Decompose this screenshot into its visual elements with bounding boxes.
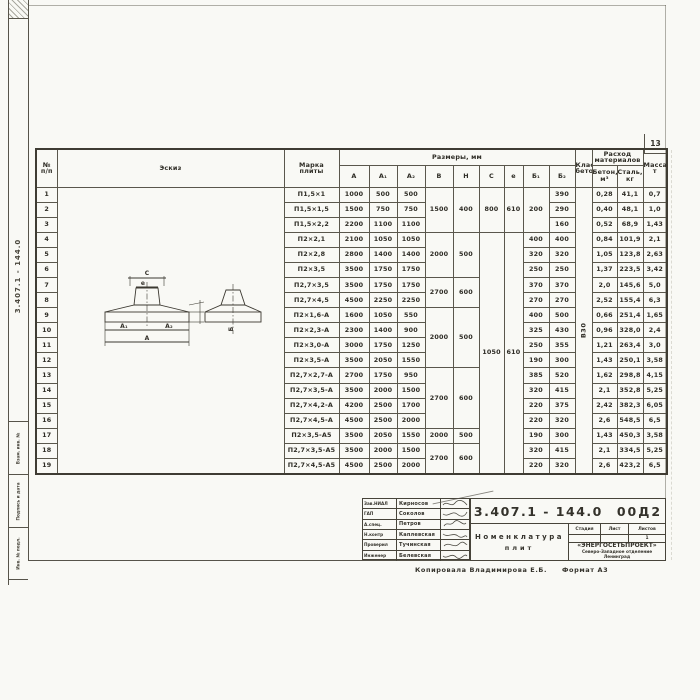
cell-b2: 320 <box>549 459 575 474</box>
cell-stal: 155,4 <box>617 293 643 308</box>
cell-marka: П2,7×3,5 <box>284 277 339 292</box>
cell-marka: П2×3,5-А <box>284 353 339 368</box>
cell-b2: 430 <box>549 323 575 338</box>
cell-num: 5 <box>36 247 57 262</box>
cell-a: 2200 <box>339 217 369 232</box>
cell-b1: 320 <box>523 247 549 262</box>
cell-b1: 400 <box>523 232 549 247</box>
cell-stal: 423,2 <box>617 459 643 474</box>
org-city: Ленинград <box>604 555 630 560</box>
col-header-a2: А₂ <box>397 165 425 187</box>
cell-stal: 41,1 <box>617 187 643 202</box>
cell-b2: 400 <box>549 232 575 247</box>
sheet-header: Лист <box>601 524 629 534</box>
cell-a: 4200 <box>339 398 369 413</box>
cell-marka: П2×2,8 <box>284 247 339 262</box>
margin-inner-line <box>28 0 29 561</box>
cell-a1: 1750 <box>369 338 397 353</box>
cell-b: 1500 <box>425 187 453 232</box>
signature-role: Проверил <box>363 540 397 549</box>
cell-massa: 3,0 <box>643 338 667 353</box>
cell-num: 16 <box>36 413 57 428</box>
cell-massa: 2,4 <box>643 323 667 338</box>
cell-a1: 1750 <box>369 277 397 292</box>
cell-beton: 1,21 <box>592 338 617 353</box>
cell-a2: 1700 <box>397 398 425 413</box>
cell-num: 3 <box>36 217 57 232</box>
cell-a: 4500 <box>339 293 369 308</box>
cell-marka: П2×2,3-А <box>284 323 339 338</box>
cell-num: 19 <box>36 459 57 474</box>
margin-box-vzam-label: Взам. инв. № <box>16 432 21 464</box>
cell-marka: П2,7×4,5 <box>284 293 339 308</box>
cell-stal: 382,3 <box>617 398 643 413</box>
cell-stal: 68,9 <box>617 217 643 232</box>
cell-num: 6 <box>36 262 57 277</box>
signature-row: Зав.НИАЛ Кирносов <box>363 499 469 509</box>
cell-a: 4500 <box>339 413 369 428</box>
stage-header: Стадия <box>569 524 601 534</box>
cell-a1: 1050 <box>369 308 397 323</box>
titleblock-title-cell: Номенклатура плит <box>470 523 569 561</box>
cell-b1: 250 <box>523 338 549 353</box>
cell-h: 600 <box>453 368 479 428</box>
cell-b1: 320 <box>523 383 549 398</box>
cell-b2: 500 <box>549 308 575 323</box>
cell-beton: 2,52 <box>592 293 617 308</box>
cell-num: 8 <box>36 293 57 308</box>
signature-name: Каплевская <box>397 530 441 539</box>
cell-massa: 6,3 <box>643 293 667 308</box>
cell-stal: 328,0 <box>617 323 643 338</box>
cell-h: 500 <box>453 308 479 368</box>
col-header-marka: Марка плиты <box>284 149 339 187</box>
signature-mark <box>441 509 469 518</box>
cell-b1: 370 <box>523 277 549 292</box>
page-number: 13 <box>650 139 660 148</box>
cell-a2: 950 <box>397 368 425 383</box>
cell-massa: 1,43 <box>643 217 667 232</box>
cell-a2: 1750 <box>397 277 425 292</box>
cell-marka: П1,5×1 <box>284 187 339 202</box>
cell-b: 2700 <box>425 443 453 473</box>
cell-num: 2 <box>36 202 57 217</box>
format-note: Формат А3 <box>562 566 608 574</box>
cell-num: 13 <box>36 368 57 383</box>
cell-massa: 3,58 <box>643 428 667 443</box>
cell-a2: 1400 <box>397 247 425 262</box>
cell-beton: 0,52 <box>592 217 617 232</box>
cell-b: 2700 <box>425 368 453 428</box>
cell-b2: 520 <box>549 368 575 383</box>
signature-name: Тучинская <box>397 540 441 549</box>
cell-a: 3500 <box>339 443 369 458</box>
cell-num: 12 <box>36 353 57 368</box>
cell-beton: 0,28 <box>592 187 617 202</box>
signature-name: Соколов <box>397 509 441 518</box>
cell-stal: 101,9 <box>617 232 643 247</box>
cell-massa: 1,65 <box>643 308 667 323</box>
cell-a1: 2500 <box>369 398 397 413</box>
col-header-a1: А₁ <box>369 165 397 187</box>
cell-beton: 2,0 <box>592 277 617 292</box>
cell-a1: 2500 <box>369 413 397 428</box>
cell-a2: 750 <box>397 202 425 217</box>
cell-num: 17 <box>36 428 57 443</box>
cell-marka: П2×3,0-А <box>284 338 339 353</box>
col-header-sketch: Эскиз <box>57 149 284 187</box>
cell-a2: 1500 <box>397 443 425 458</box>
cell-b2: 250 <box>549 262 575 277</box>
plate-cross-section-sketches: С е А₁ А₂ А Б <box>58 188 285 473</box>
cell-massa: 2,63 <box>643 247 667 262</box>
cell-num: 11 <box>36 338 57 353</box>
cell-beton: 2,6 <box>592 413 617 428</box>
cell-beton: 0,96 <box>592 323 617 338</box>
cell-num: 18 <box>36 443 57 458</box>
cell-e: 610 <box>504 232 523 474</box>
cell-a: 3500 <box>339 383 369 398</box>
cell-a1: 1400 <box>369 323 397 338</box>
col-header-b: В <box>425 165 453 187</box>
drawing-sheet: 13 3.407.1 - 144.0 Взам. инв. № Подпись … <box>0 0 700 700</box>
cell-num: 4 <box>36 232 57 247</box>
signature-role: Зав.НИАЛ <box>363 499 397 508</box>
margin-box-inv-label: Инв. № подл. <box>16 537 21 569</box>
cell-beton: 1,43 <box>592 428 617 443</box>
cell-b2: 355 <box>549 338 575 353</box>
cell-stal: 298,8 <box>617 368 643 383</box>
cell-num: 1 <box>36 187 57 202</box>
col-header-e: е <box>504 165 523 187</box>
col-header-concrete-class: Класс бетона <box>575 149 592 187</box>
cell-massa: 5,25 <box>643 443 667 458</box>
cell-a1: 1400 <box>369 247 397 262</box>
sheet-value <box>601 535 629 542</box>
signature-mark <box>441 520 469 529</box>
cell-b2: 370 <box>549 277 575 292</box>
sketch-label-a1: А₁ <box>120 323 128 330</box>
cell-a1: 750 <box>369 202 397 217</box>
cell-b2: 160 <box>549 217 575 232</box>
col-header-b1: Б₁ <box>523 165 549 187</box>
copied-by-note: Копировала Владимирова Е.Б. <box>415 566 547 574</box>
cell-b2: 375 <box>549 398 575 413</box>
col-header-b2: Б₂ <box>549 165 575 187</box>
cell-c: 1050 <box>479 232 504 474</box>
cell-a1: 2500 <box>369 459 397 474</box>
cell-a2: 1050 <box>397 232 425 247</box>
cell-beton: 2,1 <box>592 383 617 398</box>
col-header-consumption: Расход материалов <box>592 149 643 165</box>
col-header-num: № п/п <box>36 149 57 187</box>
sheet-code: 00Д2 <box>617 504 662 519</box>
cell-a: 3500 <box>339 277 369 292</box>
cell-a: 2100 <box>339 232 369 247</box>
cell-stal: 334,5 <box>617 443 643 458</box>
cell-beton: 1,05 <box>592 247 617 262</box>
sketch-cell: С е А₁ А₂ А Б <box>57 187 284 474</box>
signature-row: А.спец. Петров <box>363 520 469 530</box>
signature-row: ГАП Соколов <box>363 509 469 519</box>
cell-num: 10 <box>36 323 57 338</box>
cell-b2: 300 <box>549 428 575 443</box>
margin-corner-box <box>8 0 28 19</box>
signature-mark <box>441 551 469 561</box>
cell-marka: П2×1,6-А <box>284 308 339 323</box>
sketch-label-a: А <box>144 335 149 342</box>
cell-a: 1000 <box>339 187 369 202</box>
cell-stal: 48,1 <box>617 202 643 217</box>
cell-h: 400 <box>453 187 479 232</box>
cell-marka: П2,7×3,5-А5 <box>284 443 339 458</box>
titleblock-signature-grid: Зав.НИАЛ Кирносов ГАП Соколов А.спец. Пе… <box>362 498 470 560</box>
cell-h: 500 <box>453 232 479 277</box>
col-header-steel: Сталь, кг <box>617 165 643 187</box>
cell-a2: 1100 <box>397 217 425 232</box>
scan-edge-dashes <box>671 150 672 560</box>
cell-b1: 400 <box>523 308 549 323</box>
table-row: 1 <box>36 187 667 202</box>
cell-beton: 1,43 <box>592 353 617 368</box>
cell-massa: 6,5 <box>643 459 667 474</box>
titleblock-number-band: 3.407.1 - 144.0 00Д2 <box>470 498 666 524</box>
cell-a1: 1050 <box>369 232 397 247</box>
signature-row: Н.контр Каплевская <box>363 530 469 540</box>
cell-marka: П2,7×2,7-А <box>284 368 339 383</box>
cell-h: 600 <box>453 277 479 307</box>
cell-stal: 352,8 <box>617 383 643 398</box>
frame-top-line <box>28 5 666 6</box>
signature-role: Инженер <box>363 551 397 561</box>
cell-marka: П1,5×1,5 <box>284 202 339 217</box>
cell-a1: 2250 <box>369 293 397 308</box>
cell-beton: 0,40 <box>592 202 617 217</box>
cell-a: 1500 <box>339 202 369 217</box>
cell-num: 7 <box>36 277 57 292</box>
cell-beton: 1,62 <box>592 368 617 383</box>
cell-beton: 0,66 <box>592 308 617 323</box>
cell-marka: П2×2,1 <box>284 232 339 247</box>
signature-role: ГАП <box>363 509 397 518</box>
cell-a2: 550 <box>397 308 425 323</box>
stage-value <box>569 535 601 542</box>
drawing-title-line1: Номенклатура <box>475 533 564 541</box>
cell-a2: 2000 <box>397 459 425 474</box>
sketch-label-c: С <box>144 270 149 277</box>
cell-a1: 1750 <box>369 262 397 277</box>
cell-b1: 220 <box>523 413 549 428</box>
col-header-mass: Масса, т <box>643 149 667 187</box>
margin-box-podpis-label: Подпись и дата <box>16 482 21 520</box>
cell-beton: 2,1 <box>592 443 617 458</box>
signature-row: Проверил Тучинская <box>363 540 469 550</box>
col-header-sizes: Размеры, мм <box>339 149 575 165</box>
cell-b: 2000 <box>425 308 453 368</box>
cell-marka: П1,5×2,2 <box>284 217 339 232</box>
cell-num: 15 <box>36 398 57 413</box>
cell-marka: П2,7×4,2-А <box>284 398 339 413</box>
cell-a: 2800 <box>339 247 369 262</box>
cell-b1: 220 <box>523 398 549 413</box>
cell-a1: 2000 <box>369 443 397 458</box>
cell-a: 4500 <box>339 459 369 474</box>
sheets-value: 1 <box>629 535 665 542</box>
sketch-label-a2: А₂ <box>165 323 173 330</box>
sketch-label-b: Б <box>228 326 235 331</box>
cell-b2: 415 <box>549 383 575 398</box>
cell-h: 600 <box>453 443 479 473</box>
cell-stal: 548,5 <box>617 413 643 428</box>
cell-stal: 123,8 <box>617 247 643 262</box>
titleblock-organization: «ЭНЕРГОСЕТЬПРОЕКТ» Северо-Западное отдел… <box>568 542 666 561</box>
cell-a1: 500 <box>369 187 397 202</box>
cell-b: 2000 <box>425 232 453 277</box>
cell-b1: 220 <box>523 459 549 474</box>
sheets-header: Листов <box>629 524 665 534</box>
cell-a2: 500 <box>397 187 425 202</box>
signature-role: А.спец. <box>363 520 397 529</box>
cell-a2: 1250 <box>397 338 425 353</box>
cell-b: 2700 <box>425 277 453 307</box>
cell-b2: 320 <box>549 247 575 262</box>
cell-massa: 1,0 <box>643 202 667 217</box>
cell-b1: 250 <box>523 262 549 277</box>
cell-b1: 320 <box>523 443 549 458</box>
sketch-label-e: е <box>140 280 144 287</box>
cell-a2: 1750 <box>397 262 425 277</box>
cell-b1: 190 <box>523 353 549 368</box>
cell-massa: 5,25 <box>643 383 667 398</box>
cell-concrete-class: В30 <box>575 187 592 474</box>
cell-stal: 263,4 <box>617 338 643 353</box>
cell-b2: 320 <box>549 413 575 428</box>
plate-nomenclature-table: № п/п Эскиз Марка плиты Размеры, мм Клас… <box>35 148 668 475</box>
col-header-h: Н <box>453 165 479 187</box>
signature-mark <box>441 540 469 549</box>
cell-massa: 0,7 <box>643 187 667 202</box>
signature-name: Петров <box>397 520 441 529</box>
signature-row: Инженер Белевская <box>363 551 469 561</box>
cell-a1: 2000 <box>369 383 397 398</box>
cell-beton: 0,84 <box>592 232 617 247</box>
cell-a2: 1500 <box>397 383 425 398</box>
table-header-row-1: № п/п Эскиз Марка плиты Размеры, мм Клас… <box>36 149 667 165</box>
margin-box-inv: Инв. № подл. <box>8 527 28 580</box>
cell-stal: 251,4 <box>617 308 643 323</box>
cell-stal: 250,1 <box>617 353 643 368</box>
cell-a1: 1100 <box>369 217 397 232</box>
cell-c: 800 <box>479 187 504 232</box>
cell-marka: П2,7×3,5-А <box>284 383 339 398</box>
cell-b1: 270 <box>523 293 549 308</box>
cell-marka: П2×3,5-А5 <box>284 428 339 443</box>
cell-massa: 4,15 <box>643 368 667 383</box>
cell-b: 2000 <box>425 428 453 443</box>
cell-b1: 385 <box>523 368 549 383</box>
cell-a1: 2050 <box>369 353 397 368</box>
margin-doc-number: 3.407.1 - 144.0 <box>14 211 22 341</box>
cell-b2: 270 <box>549 293 575 308</box>
cell-b2: 290 <box>549 202 575 217</box>
cell-a: 2700 <box>339 368 369 383</box>
cell-a1: 2050 <box>369 428 397 443</box>
cell-beton: 1,37 <box>592 262 617 277</box>
margin-box-vzam: Взам. инв. № <box>8 421 28 474</box>
cell-stal: 450,3 <box>617 428 643 443</box>
cell-massa: 2,1 <box>643 232 667 247</box>
cell-a2: 2250 <box>397 293 425 308</box>
concrete-class-value: В30 <box>580 322 587 338</box>
cell-a2: 900 <box>397 323 425 338</box>
cell-massa: 6,05 <box>643 398 667 413</box>
cell-stal: 145,6 <box>617 277 643 292</box>
cell-massa: 5,0 <box>643 277 667 292</box>
cell-num: 9 <box>36 308 57 323</box>
cell-a: 3500 <box>339 262 369 277</box>
cell-h: 500 <box>453 428 479 443</box>
col-header-concrete: Бетон, м³ <box>592 165 617 187</box>
cell-a: 3000 <box>339 338 369 353</box>
cell-marka: П2,7×4,5-А <box>284 413 339 428</box>
cell-a: 3500 <box>339 428 369 443</box>
cell-stal: 223,5 <box>617 262 643 277</box>
cell-a1: 1750 <box>369 368 397 383</box>
signature-role: Н.контр <box>363 530 397 539</box>
cell-massa: 3,58 <box>643 353 667 368</box>
document-number: 3.407.1 - 144.0 <box>474 504 603 519</box>
col-header-c: С <box>479 165 504 187</box>
cell-b1: 190 <box>523 428 549 443</box>
col-header-a: А <box>339 165 369 187</box>
cell-a: 1600 <box>339 308 369 323</box>
cell-marka: П2,7×4,5-А5 <box>284 459 339 474</box>
drawing-title-line2: плит <box>505 544 535 552</box>
cell-a2: 1550 <box>397 353 425 368</box>
cell-a: 3500 <box>339 353 369 368</box>
cell-num: 14 <box>36 383 57 398</box>
cell-e: 610 <box>504 187 523 232</box>
cell-b2: 390 <box>549 187 575 202</box>
cell-a2: 1550 <box>397 428 425 443</box>
cell-marka: П2×3,5 <box>284 262 339 277</box>
cell-a2: 2000 <box>397 413 425 428</box>
cell-a: 2300 <box>339 323 369 338</box>
cell-b1: 325 <box>523 323 549 338</box>
cell-massa: 3,42 <box>643 262 667 277</box>
margin-box-podpis: Подпись и дата <box>8 474 28 527</box>
cell-massa: 6,5 <box>643 413 667 428</box>
cell-b2: 300 <box>549 353 575 368</box>
cell-b2: 415 <box>549 443 575 458</box>
cell-beton: 2,6 <box>592 459 617 474</box>
signature-name: Белевская <box>397 551 441 561</box>
cell-beton: 2,42 <box>592 398 617 413</box>
cell-b1: 200 <box>523 187 549 232</box>
signature-mark <box>441 530 469 539</box>
